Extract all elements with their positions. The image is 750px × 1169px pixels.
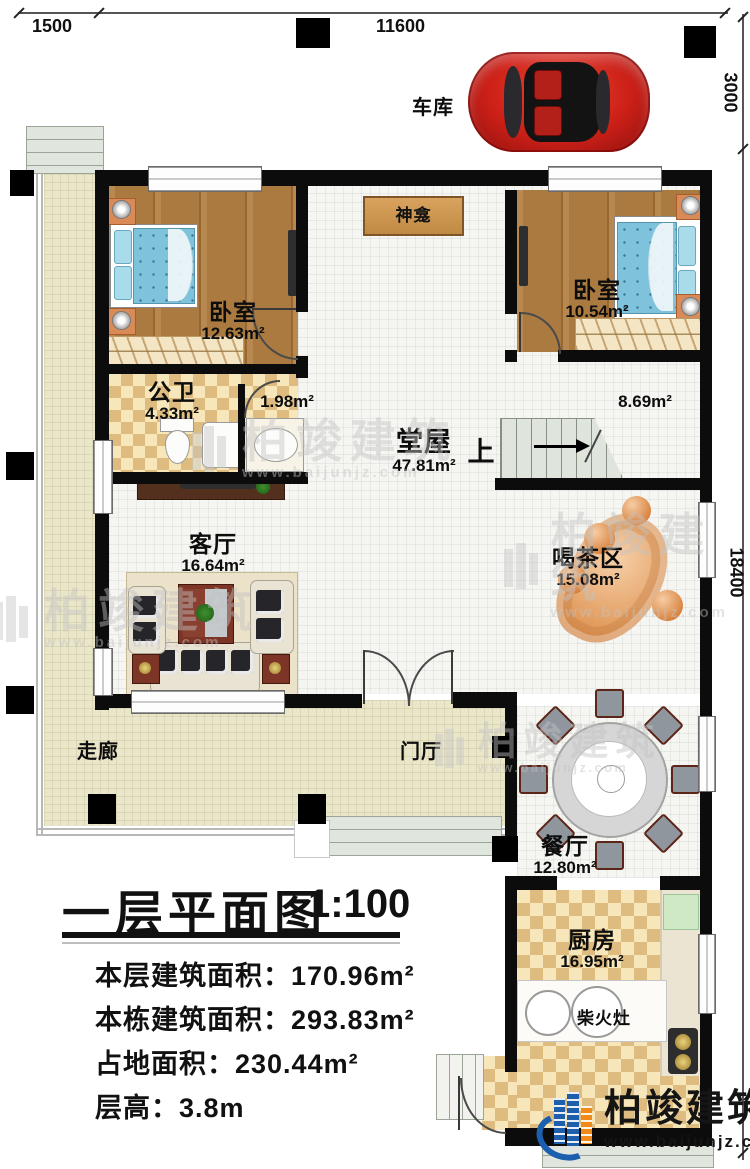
stat-footprint-area: 占地面积：230.44m² (95, 1042, 359, 1081)
dimension-line-top (18, 12, 728, 14)
stool (622, 496, 651, 525)
car-seat (534, 70, 562, 100)
wall (109, 364, 308, 374)
door-leaf (519, 312, 521, 352)
room-label-hall: 堂屋 47.81m² (392, 428, 455, 477)
porch-railing (41, 146, 43, 834)
plant-icon (196, 604, 214, 622)
wall (296, 184, 308, 312)
room-label-kitchen: 厨房 16.95m² (560, 928, 623, 973)
wardrobe (575, 318, 704, 351)
window-symbol (148, 166, 262, 192)
room-label-tea: 喝茶区 15.08m² (552, 546, 624, 591)
room-label-closet-area: 1.98m² (260, 392, 314, 412)
decor-dot (269, 662, 281, 674)
dining-chair (595, 689, 624, 718)
column (88, 794, 116, 824)
brand-logo-icon (538, 1090, 596, 1152)
shrine-shelf: 神龛 (363, 196, 464, 236)
sofa-cushion (181, 650, 203, 674)
stat-storey-height: 层高：3.8m (95, 1086, 245, 1125)
decor-dot (139, 662, 151, 674)
room-label-foyer: 门厅 (400, 742, 442, 763)
room-name: 走廊 (77, 742, 119, 763)
door-leaf (458, 1076, 460, 1130)
window-symbol (698, 934, 716, 1014)
column (6, 452, 34, 480)
entry-steps-top-left (26, 126, 104, 174)
lamp-icon (681, 196, 700, 215)
stool (652, 590, 683, 621)
sofa-cushion (256, 590, 284, 614)
dimension-label-3000: 3000 (720, 63, 741, 123)
room-name: 门厅 (400, 742, 442, 763)
bed-pillow (114, 230, 132, 264)
sofa-cushion (206, 650, 228, 674)
column (492, 736, 516, 758)
window-symbol (548, 166, 662, 192)
tv-symbol (519, 226, 528, 286)
column-base (294, 820, 330, 858)
room-area: 1.98m² (260, 392, 314, 412)
room-label-wood-stove: 柴火灶 (577, 1010, 631, 1028)
room-name: 客厅 (181, 532, 244, 556)
room-area: 12.63m² (201, 324, 264, 344)
room-label-bedroom-left: 卧室 12.63m² (201, 300, 264, 345)
wall (505, 190, 517, 314)
window-symbol (93, 648, 113, 696)
column (296, 18, 330, 48)
bed-pillow (114, 266, 132, 300)
window-symbol (131, 690, 285, 714)
column (684, 26, 716, 58)
room-name: 公卫 (145, 380, 199, 404)
wall (95, 694, 131, 708)
room-area: 4.33m² (145, 404, 199, 424)
cooktop-burner (675, 1054, 691, 1070)
cooktop-burner (675, 1034, 691, 1050)
room-name: 卧室 (201, 300, 264, 324)
window-symbol (93, 440, 113, 514)
entry-steps-bottom (320, 816, 502, 856)
logo-bar (567, 1092, 579, 1146)
wall (283, 694, 362, 708)
room-name: 堂屋 (392, 428, 455, 456)
dining-chair (595, 841, 624, 870)
watermark-logo-icon (0, 594, 34, 646)
room-area: 16.95m² (560, 952, 623, 972)
car-symbol (468, 52, 650, 152)
dining-chair (519, 765, 548, 794)
stat-building-area: 本栋建筑面积：293.83m² (95, 998, 415, 1037)
title-rule (62, 932, 400, 938)
up-text: 上 (468, 437, 495, 467)
room-area: 10.54m² (565, 302, 628, 322)
room-name: 喝茶区 (552, 546, 624, 570)
wall (558, 350, 712, 362)
sofa-cushion (133, 596, 159, 618)
stairs-arrow-head (576, 439, 590, 453)
room-label-living: 客厅 16.64m² (181, 532, 244, 577)
room-area: 47.81m² (392, 456, 455, 476)
room-label-bedroom-right: 卧室 10.54m² (565, 278, 628, 323)
shrine-label: 神龛 (396, 207, 432, 225)
room-name: 卧室 (565, 278, 628, 302)
lamp-icon (681, 297, 700, 316)
sofa-cushion (133, 622, 159, 644)
column (298, 794, 326, 824)
sofa-cushion (231, 650, 253, 674)
car-seat (534, 106, 562, 136)
room-label-corridor: 走廊 (77, 742, 119, 763)
stairs-up-label: 上 (468, 430, 495, 469)
room-name: 柴火灶 (577, 1010, 631, 1028)
stove-burner (525, 990, 571, 1036)
room-label-dining: 餐厅 12.80m² (533, 834, 596, 879)
room-name: 厨房 (560, 928, 623, 952)
wall (505, 876, 517, 1072)
window-symbol (698, 716, 716, 792)
porch-railing (36, 146, 38, 834)
brand-logo: 柏竣建筑 www.baijunjz.com (538, 1090, 750, 1152)
car-rear-window (596, 70, 610, 134)
brand-name: 柏竣建筑 (604, 1090, 750, 1128)
sofa-cushion (256, 618, 284, 642)
door-arc (460, 1078, 506, 1134)
room-area: 15.08m² (552, 570, 624, 590)
lamp-icon (112, 311, 131, 330)
room-area: 8.69m² (618, 392, 672, 412)
wall (495, 478, 712, 490)
wall (505, 694, 517, 836)
room-label-bathroom: 公卫 4.33m² (145, 380, 199, 425)
floor-plan: 神龛 车库 卧室 12.63m² 卧室 10.54m² 公卫 4.33m² 1.… (0, 0, 750, 1169)
room-area: 12.80m² (533, 858, 596, 878)
stairs-arrow-line (534, 445, 576, 448)
dimension-label-11600: 11600 (376, 16, 425, 37)
column (10, 170, 34, 196)
column (492, 836, 518, 862)
lamp-icon (112, 200, 131, 219)
logo-bar (554, 1098, 565, 1144)
wall (505, 350, 517, 362)
window-symbol (698, 502, 716, 578)
room-label-garage: 车库 (412, 98, 454, 119)
door-leaf (451, 650, 453, 704)
dimension-label-1500: 1500 (32, 16, 72, 37)
logo-bar (581, 1106, 592, 1144)
bed-blanket (648, 223, 673, 311)
plan-scale: 1:100 (308, 882, 410, 927)
fridge (663, 894, 699, 930)
dimension-label-18400: 18400 (726, 533, 747, 613)
brand-url: www.baijunjz.com (604, 1132, 750, 1152)
room-name: 餐厅 (533, 834, 596, 858)
wall (109, 472, 308, 484)
stat-floor-area: 本层建筑面积：170.96m² (95, 954, 415, 993)
room-label-landing-area: 8.69m² (618, 392, 672, 412)
room-name: 车库 (412, 98, 454, 119)
car-windshield (504, 66, 522, 138)
wall (238, 384, 245, 472)
wall (660, 876, 712, 890)
column (6, 686, 34, 714)
dining-chair (671, 765, 700, 794)
room-area: 16.64m² (181, 556, 244, 576)
sink-basin (254, 428, 298, 462)
title-rule-thin (62, 942, 400, 944)
lazy-susan (597, 765, 625, 793)
door-leaf (363, 650, 365, 704)
bed-pillow (678, 226, 696, 266)
